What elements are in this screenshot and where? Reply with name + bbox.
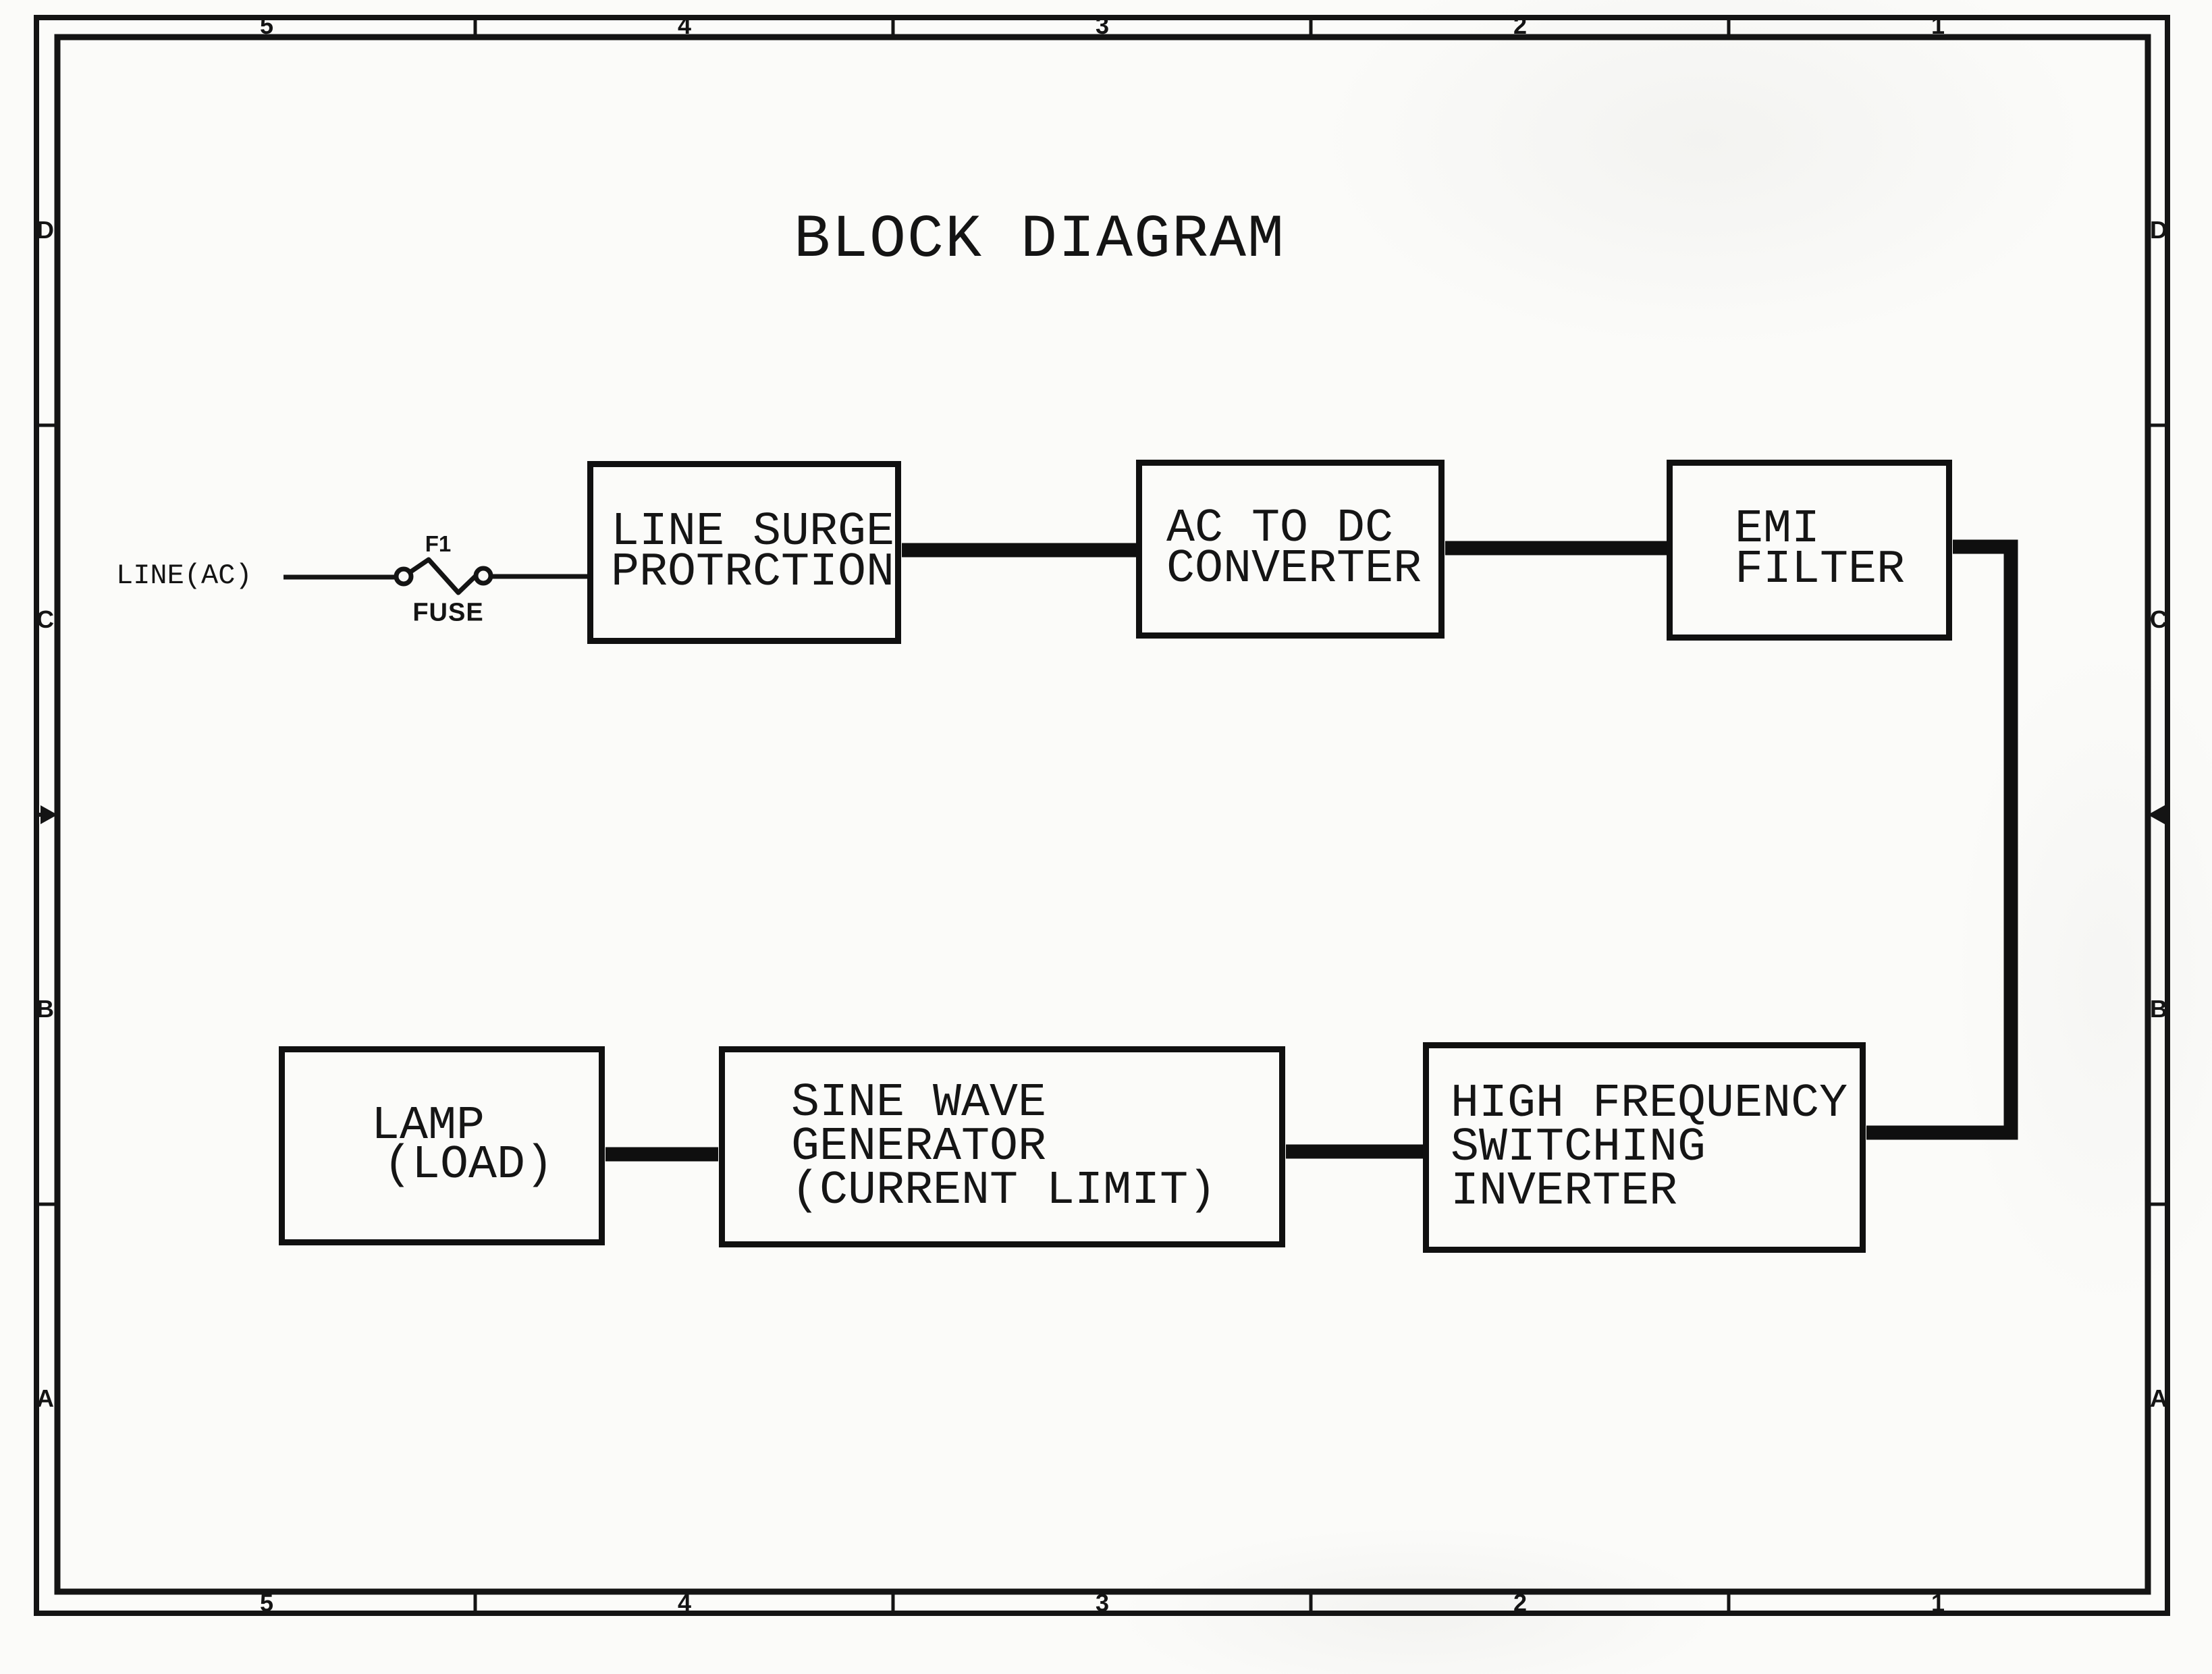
zone-label-top-1: 1 [1931, 13, 1945, 38]
line-ac-label: LINE(AC) [116, 560, 252, 592]
page-title: BLOCK DIAGRAM [794, 206, 1285, 275]
block-label-line: FILTER [1735, 550, 1946, 591]
block-emi-filter: EMI FILTER [1667, 460, 1952, 641]
block-high-frequency-switching-inverter: HIGH FREQUENCY SWITCHING INVERTER [1423, 1042, 1866, 1253]
zone-label-bottom-4: 4 [678, 1591, 691, 1615]
fuse-terminal-right [476, 568, 491, 583]
fuse-terminal-left [396, 569, 411, 584]
fuse-symbol [396, 560, 491, 593]
block-lamp-load: LAMP (LOAD) [279, 1046, 605, 1245]
block-ac-to-dc-converter: AC TO DC CONVERTER [1136, 460, 1445, 639]
zone-label-top-2: 2 [1513, 13, 1527, 38]
block-label-line: INVERTER [1451, 1170, 1860, 1214]
zone-label-left-b: B [36, 997, 54, 1021]
block-label-line: CONVERTER [1166, 549, 1438, 590]
zone-label-left-d: D [36, 218, 54, 242]
block-sine-wave-generator: SINE WAVE GENERATOR (CURRENT LIMIT) [719, 1046, 1285, 1247]
zone-label-bottom-2: 2 [1513, 1591, 1527, 1615]
fuse-label: FUSE [412, 599, 483, 628]
zone-label-bottom-5: 5 [260, 1591, 273, 1615]
block-line-surge-protection: LINE SURGE PROTRCTION [587, 461, 901, 644]
zone-label-top-3: 3 [1096, 13, 1109, 38]
fuse-element-zigzag [410, 560, 478, 593]
zone-label-right-c: C [2150, 607, 2167, 632]
block-label-line: SWITCHING [1451, 1126, 1860, 1170]
block-label-line: (LOAD) [383, 1146, 599, 1185]
zone-label-bottom-3: 3 [1096, 1591, 1109, 1615]
zone-label-left-a: A [36, 1386, 54, 1411]
block-label-line: GENERATOR [791, 1125, 1279, 1169]
zone-label-right-b: B [2150, 997, 2167, 1021]
block-label-line: PROTRCTION [611, 553, 895, 593]
zone-label-top-4: 4 [678, 13, 691, 38]
drawing-sheet: BLOCK DIAGRAM 5 4 3 2 1 5 4 3 2 1 D C B … [0, 0, 2212, 1674]
zone-label-right-d: D [2150, 218, 2167, 242]
zone-label-bottom-1: 1 [1931, 1591, 1945, 1615]
zone-label-top-5: 5 [260, 13, 273, 38]
block-label-line: SINE WAVE [791, 1081, 1279, 1125]
fuse-designator-label: F1 [425, 531, 452, 557]
zone-label-right-a: A [2150, 1386, 2167, 1411]
zone-label-left-c: C [36, 607, 54, 632]
block-label-line: HIGH FREQUENCY [1451, 1082, 1860, 1126]
block-label-line: (CURRENT LIMIT) [791, 1169, 1279, 1213]
